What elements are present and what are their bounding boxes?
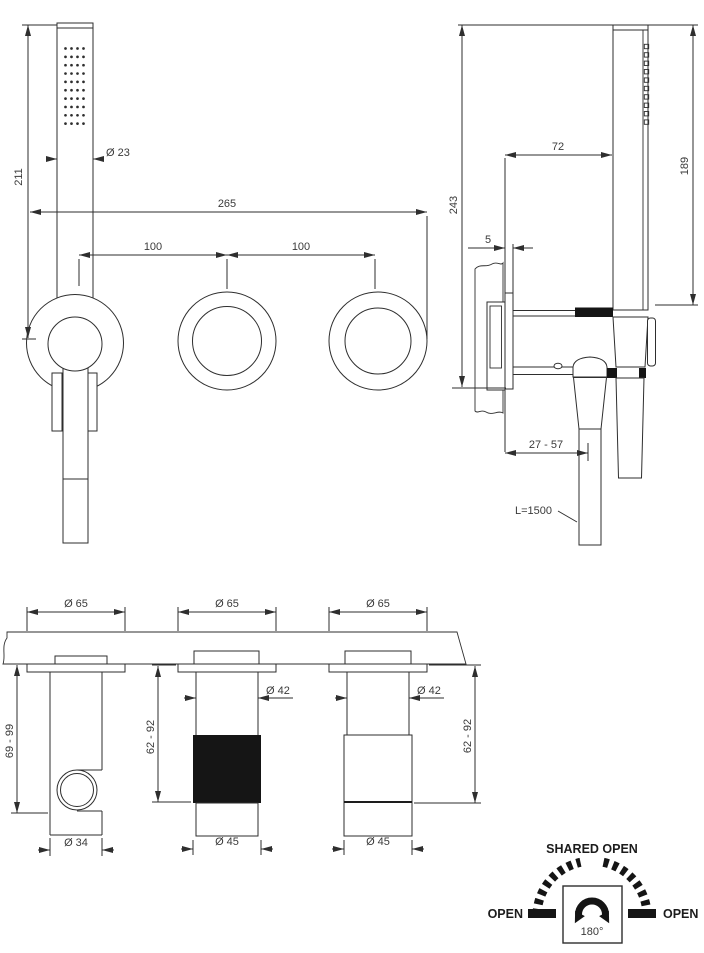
holder-cup-side [648,318,656,366]
dim-d65-left: Ø 65 [27,598,125,631]
dim-d45-middle-label: Ø 45 [215,836,239,848]
knob-middle-plate-section [178,664,276,672]
dim-27-57: 27 - 57 [505,439,588,461]
rosette-side [505,293,513,389]
dim-d42-middle-label: Ø 42 [266,685,290,697]
dim-d42-right-label: Ø 42 [417,685,441,697]
dim-d65-middle-label: Ø 65 [215,598,239,610]
front-view: 211 Ø 23 265 100 100 [13,23,427,543]
dim-d45-middle: Ø 45 [181,836,273,855]
holder-profile [50,672,102,835]
dim-62-92-right-label: 62 - 92 [462,719,474,753]
dim-69-99: 69 - 99 [4,664,48,813]
shared-open-label: SHARED OPEN [546,842,638,856]
bottom-view: Ø 65 Ø 65 Ø 65 69 - 99 62 - 92 [3,598,481,856]
knob-middle-profile [193,672,261,836]
dim-62-92-middle: 62 - 92 [145,665,191,802]
dim-d42-right: Ø 42 [335,685,444,698]
open-bar-right [628,909,656,918]
dim-62-92-middle-label: 62 - 92 [145,720,157,754]
dim-211-label: 211 [13,168,25,186]
open-left-label: OPEN [488,907,523,921]
water-outlet-elbow [573,357,607,377]
holder-hook-inner [61,774,94,807]
hand-shower-front [57,23,93,312]
knob-right-plate-section [329,664,427,672]
handshower-grip-side [613,317,648,367]
dim-d65-middle: Ø 65 [178,598,276,631]
dim-d45-right-label: Ø 45 [366,836,390,848]
open-right-label: OPEN [663,907,698,921]
dim-d34-label: Ø 34 [64,837,88,849]
handshower-handle-front [63,366,88,543]
open-bar-left [528,909,556,918]
dim-211: 211 [13,25,57,339]
holder-ring-front [48,317,102,371]
side-view: 243 189 72 5 27 - 57 L=1500 [448,25,698,545]
dim-72-label: 72 [552,141,564,153]
dim-243-label: 243 [448,196,460,214]
dim-27-57-label: 27 - 57 [529,439,563,451]
knurled-grip [193,735,261,803]
dim-189: 189 [655,25,698,305]
dim-69-99-label: 69 - 99 [4,724,16,758]
dim-d23-label: Ø 23 [106,147,130,159]
handshower-handle-side [616,378,644,478]
knob-right-front [329,292,427,390]
holder-tab-left [52,373,62,431]
outlet-screw-hole [554,363,562,369]
dim-72: 72 [505,141,612,155]
rotation-diagram: SHARED OPEN OPEN OPEN 180° [488,842,699,943]
hose-nut [574,378,607,430]
dim-5-label: 5 [485,234,491,246]
knob-middle-front [178,292,276,390]
holder-tab-right [88,373,98,431]
dim-d34: Ø 34 [38,837,114,856]
dim-265-label: 265 [218,198,236,210]
hose-length-callout: L=1500 [515,505,577,522]
knob-right-profile [344,672,412,836]
holder-plate-section [27,664,125,672]
dim-d42-middle: Ø 42 [184,685,293,698]
shower-mixer-technical-drawing: 211 Ø 23 265 100 100 [0,0,704,953]
dim-100-left: 100 [79,241,227,286]
dim-d65-left-label: Ø 65 [64,598,88,610]
technical-drawing-page: 211 Ø 23 265 100 100 [0,0,704,953]
dim-d65-right-label: Ø 65 [366,598,390,610]
dim-100-left-label: 100 [144,241,162,253]
dim-100-right: 100 [227,241,375,289]
angle-180-label: 180° [581,926,604,938]
dim-d65-right: Ø 65 [329,598,427,631]
holder-clamp-side [575,308,613,318]
hose-length-label: L=1500 [515,505,552,517]
shower-hose [579,429,601,545]
dim-d45-right: Ø 45 [332,836,424,855]
dim-189-label: 189 [679,157,691,175]
hand-shower-side [613,25,649,310]
dim-100-right-label: 100 [292,241,310,253]
